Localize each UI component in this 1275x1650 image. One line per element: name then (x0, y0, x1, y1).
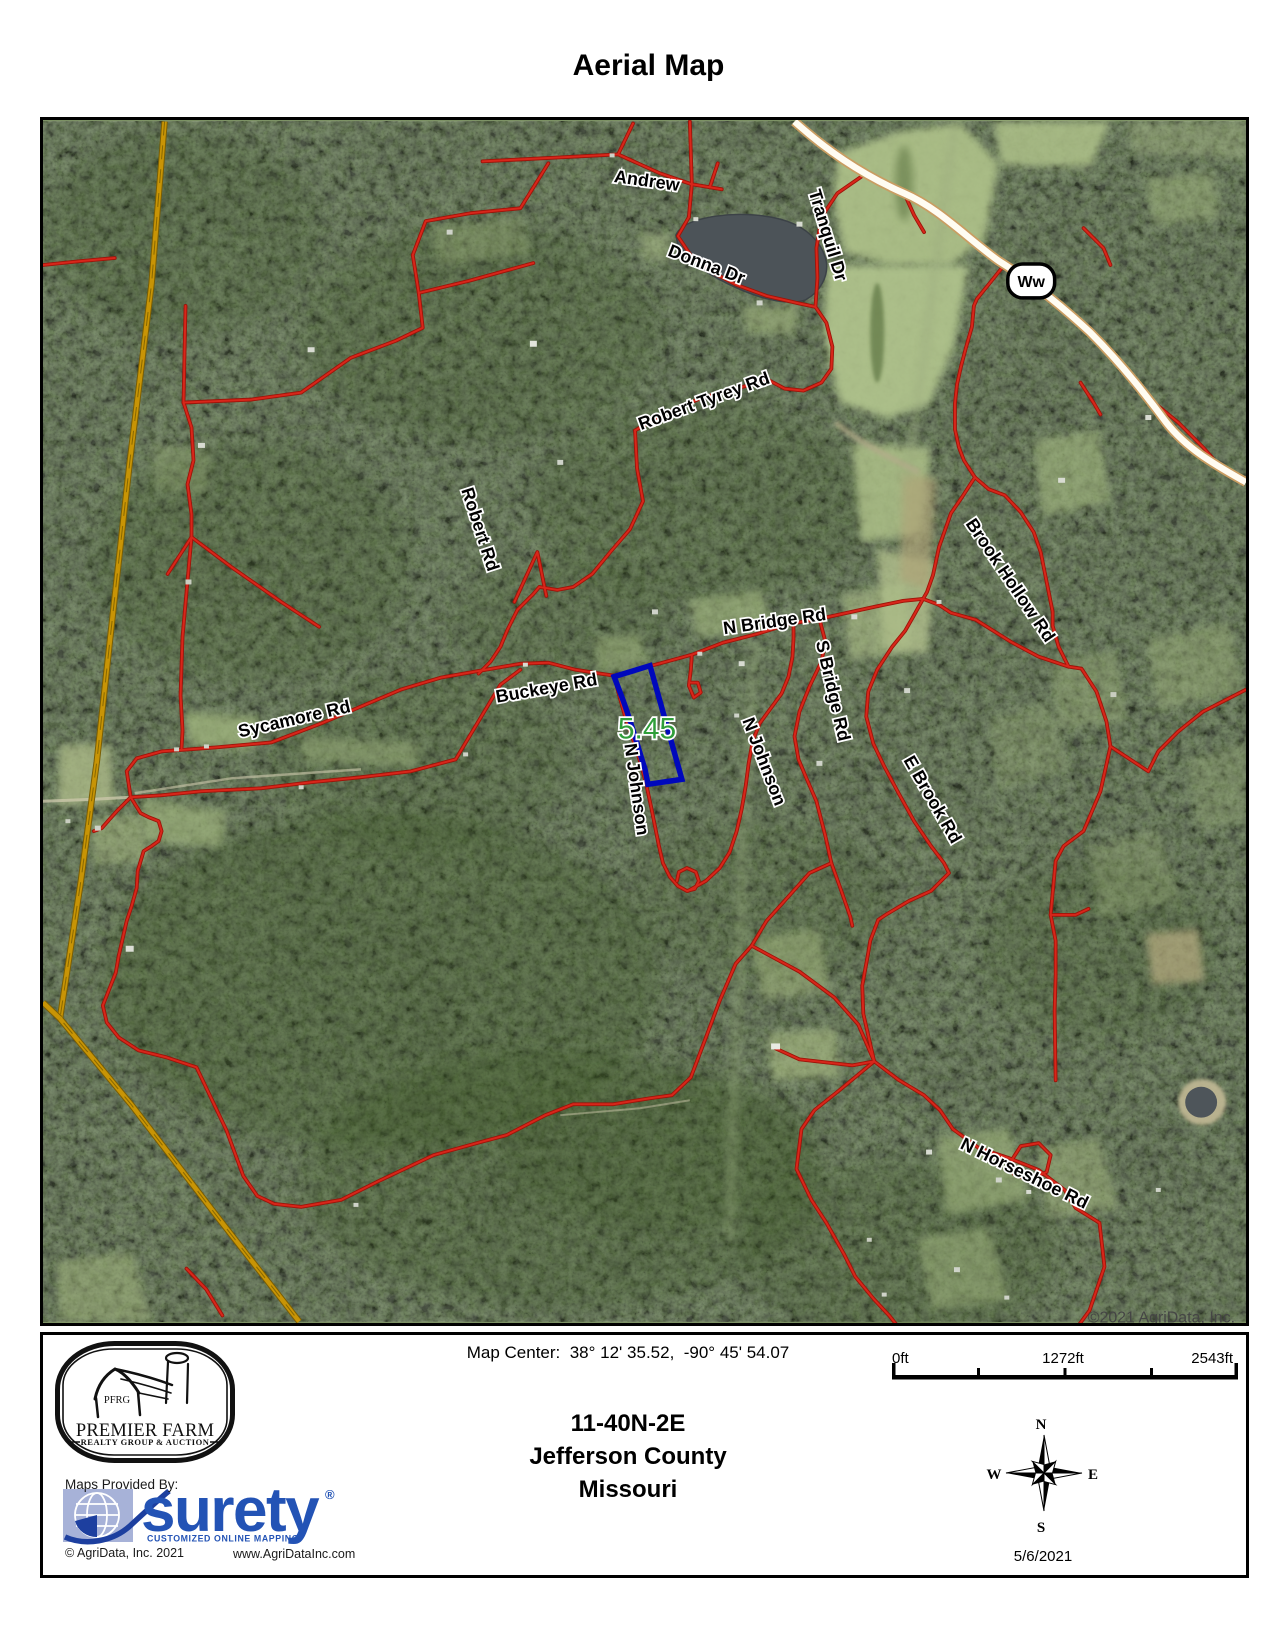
svg-text:5.45: 5.45 (618, 712, 676, 745)
svg-text:PFRG: PFRG (104, 1395, 131, 1406)
svg-text:S: S (1037, 1520, 1045, 1536)
svg-text:Ww: Ww (1017, 274, 1045, 291)
svg-text:REALTY GROUP & AUCTION: REALTY GROUP & AUCTION (81, 1437, 210, 1447)
svg-text:©2021 AgriData, Inc.: ©2021 AgriData, Inc. (1088, 1310, 1235, 1323)
svg-text:E: E (1088, 1467, 1098, 1483)
svg-text:W: W (987, 1467, 1002, 1483)
svg-text:CUSTOMIZED ONLINE MAPPING: CUSTOMIZED ONLINE MAPPING (147, 1534, 299, 1544)
svg-text:N: N (1036, 1417, 1047, 1433)
